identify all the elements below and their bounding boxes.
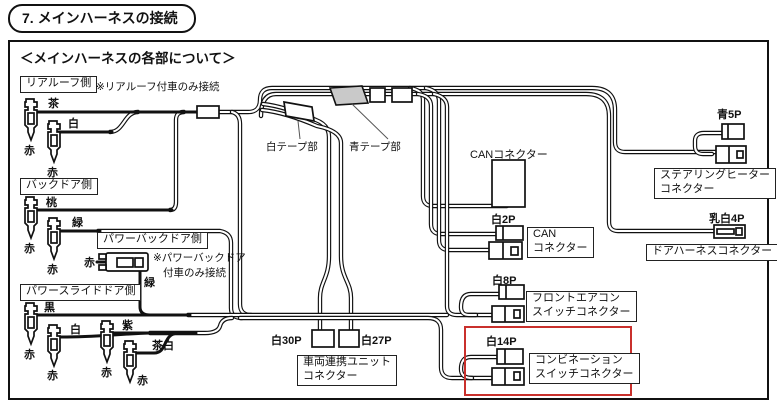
leader-blue-tape bbox=[352, 104, 388, 139]
wire-left-riser bbox=[232, 112, 251, 315]
door-harness-label: ドアハーネスコネクター bbox=[646, 244, 777, 261]
white-27p-pin: 白27P bbox=[361, 332, 392, 348]
plug-back-door-1 bbox=[25, 197, 37, 238]
group-label-rear-roof: リアルーフ側 bbox=[20, 76, 97, 93]
wire-label-red-pbd: 赤 bbox=[84, 254, 95, 270]
page-title: 7. メインハーネスの接続 bbox=[8, 4, 196, 33]
wire-label-white-f: 白 bbox=[70, 321, 81, 337]
can-sub-label: CAN コネクター bbox=[527, 227, 594, 258]
terminal-label-red-6: 赤 bbox=[47, 367, 58, 383]
white-tape bbox=[284, 102, 314, 121]
wire-label-black: 黒 bbox=[44, 299, 55, 315]
wire-label-green-pbd: 緑 bbox=[144, 274, 155, 290]
terminal-label-red-8: 赤 bbox=[137, 372, 148, 388]
group-label-back-door: バックドア側 bbox=[20, 178, 98, 195]
wire-label-brownwhite: 茶白 bbox=[152, 337, 174, 353]
blue-tape bbox=[330, 86, 368, 105]
terminal-label-red-4: 赤 bbox=[47, 261, 58, 277]
white-2p-pin: 白2P bbox=[491, 211, 515, 227]
can-main-connector bbox=[492, 160, 525, 207]
white-2p-connector bbox=[496, 226, 523, 240]
can-main-label: CANコネクター bbox=[470, 146, 548, 162]
wire-label-white-a: 白 bbox=[68, 115, 79, 131]
note-line-1: ※パワーバックドア bbox=[153, 252, 246, 264]
section-heading: ＜メインハーネスの各部について＞ bbox=[20, 47, 236, 67]
manual-page: 7. メインハーネスの接続 ＜メインハーネスの各部について＞ リアルーフ側 ※リ… bbox=[0, 0, 777, 405]
group-label-power-back-door: パワーバックドア側 bbox=[97, 232, 208, 249]
blue-tape-label: 青テープ部 bbox=[349, 139, 401, 154]
wire-label-green: 緑 bbox=[72, 214, 83, 230]
group-label-power-slide-door: パワースライドドア側 bbox=[20, 284, 141, 301]
terminal-label-red-1: 赤 bbox=[24, 142, 35, 158]
can-sub-connector bbox=[489, 242, 522, 259]
note-line-2: 付車のみ接続 bbox=[153, 267, 226, 279]
plug-rear-roof-2 bbox=[48, 121, 60, 162]
tape-wrap-left bbox=[197, 106, 219, 118]
white-tape-label: 白テープ部 bbox=[266, 139, 318, 154]
combination-pin: 白14P bbox=[486, 333, 517, 349]
plug-slide-door-2 bbox=[48, 325, 60, 366]
aircon-pin: 白8P bbox=[492, 272, 516, 288]
terminal-label-red-7: 赤 bbox=[101, 364, 112, 380]
aircon-label: フロントエアコン スイッチコネクター bbox=[526, 291, 637, 322]
white-27p-connector bbox=[339, 330, 359, 347]
wire-can-2p-feed bbox=[418, 94, 497, 234]
steering-upper-connector bbox=[722, 124, 744, 139]
aircon-lower-connector bbox=[492, 306, 524, 322]
leader-white-tape bbox=[298, 121, 300, 139]
wire-label-pink: 桃 bbox=[46, 194, 57, 210]
terminal-label-red-5: 赤 bbox=[24, 346, 35, 362]
vehicle-link-label: 車両連携ユニット コネクター bbox=[297, 355, 397, 386]
door-harness-connector bbox=[714, 225, 745, 238]
plug-rear-roof-1 bbox=[25, 99, 37, 140]
wire-can-sub-feed bbox=[426, 88, 490, 250]
plug-slide-door-4 bbox=[124, 341, 136, 382]
white-30p-connector bbox=[312, 330, 334, 347]
power-back-door-connector bbox=[99, 253, 148, 271]
white-30p-pin: 白30P bbox=[271, 332, 302, 348]
terminal-label-red-3: 赤 bbox=[24, 240, 35, 256]
combination-label: コンビネーション スイッチコネクター bbox=[529, 353, 640, 384]
wire-label-purple: 紫 bbox=[122, 317, 133, 333]
tape-wrap-right bbox=[392, 88, 412, 102]
steering-lower-connector bbox=[716, 146, 746, 163]
wire-label-brown: 茶 bbox=[48, 95, 59, 111]
plug-back-door-2 bbox=[48, 218, 60, 259]
steering-pin: 青5P bbox=[717, 106, 741, 122]
note-rear-roof: ※リアルーフ付車のみ接続 bbox=[96, 79, 220, 94]
tape-wrap-mid bbox=[370, 88, 385, 102]
terminal-label-red-2: 赤 bbox=[47, 164, 58, 180]
steering-label: ステアリングヒーター コネクター bbox=[654, 168, 776, 199]
door-harness-pin: 乳白4P bbox=[709, 210, 744, 226]
note-power-back-door: ※パワーバックドア 付車のみ接続 bbox=[153, 250, 246, 280]
plug-slide-door-3 bbox=[101, 321, 113, 362]
plug-slide-door-1 bbox=[25, 303, 37, 344]
